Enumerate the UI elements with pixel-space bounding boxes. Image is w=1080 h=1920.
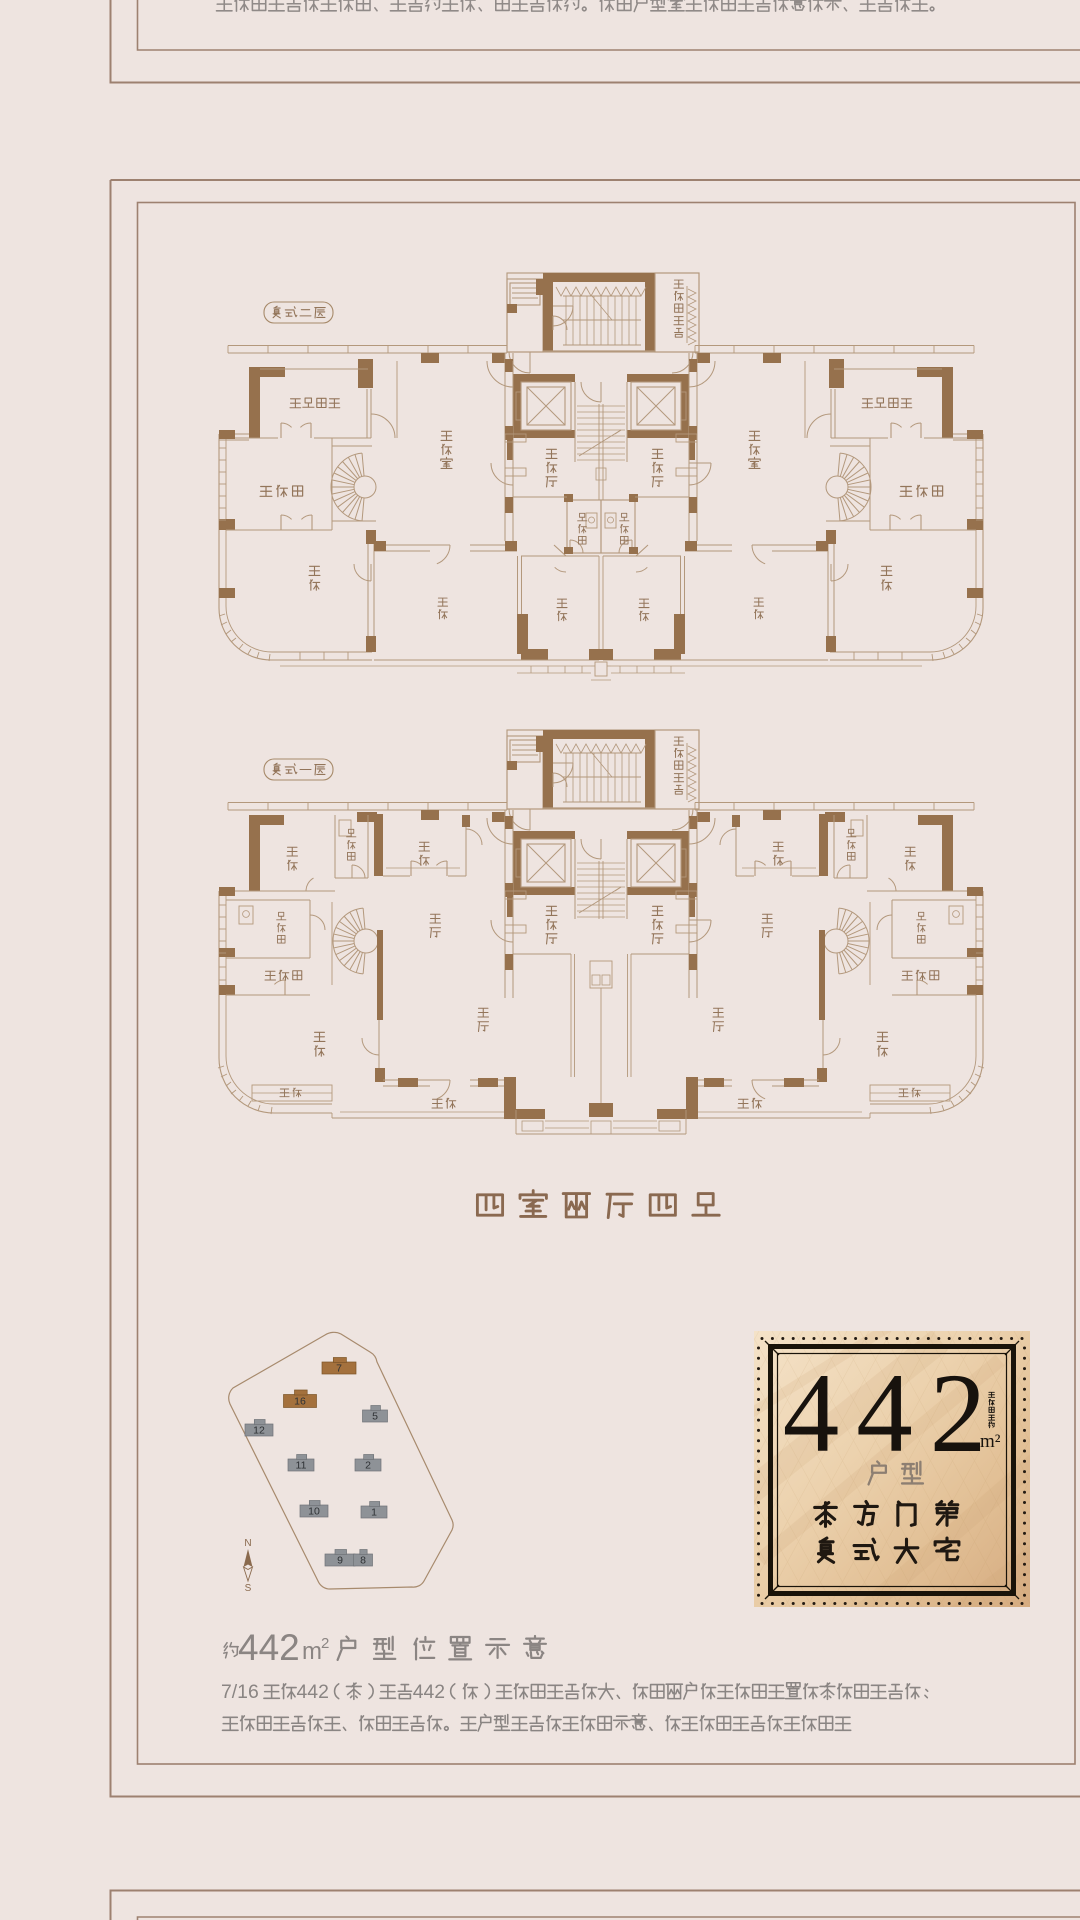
svg-text:10: 10 bbox=[308, 1506, 320, 1518]
svg-text:11: 11 bbox=[296, 1460, 307, 1472]
svg-text:7: 7 bbox=[336, 1363, 342, 1375]
svg-text:N: N bbox=[244, 1538, 251, 1549]
svg-text:8: 8 bbox=[360, 1555, 366, 1567]
svg-text:S: S bbox=[245, 1583, 252, 1594]
svg-text:7/16: 7/16 bbox=[221, 1681, 259, 1703]
svg-text:2: 2 bbox=[365, 1460, 371, 1472]
svg-text:m²: m² bbox=[980, 1431, 1001, 1452]
svg-text:9: 9 bbox=[337, 1555, 343, 1567]
svg-text:12: 12 bbox=[253, 1425, 265, 1437]
svg-text:442: 442 bbox=[297, 1681, 329, 1703]
svg-text:1: 1 bbox=[371, 1507, 377, 1519]
svg-text:16: 16 bbox=[294, 1396, 306, 1408]
svg-text:442: 442 bbox=[238, 1627, 300, 1668]
svg-text:442: 442 bbox=[783, 1351, 1004, 1476]
svg-text:2: 2 bbox=[321, 1635, 329, 1652]
svg-text:442: 442 bbox=[413, 1681, 445, 1703]
svg-text:5: 5 bbox=[372, 1411, 378, 1423]
svg-text:m: m bbox=[302, 1638, 322, 1665]
